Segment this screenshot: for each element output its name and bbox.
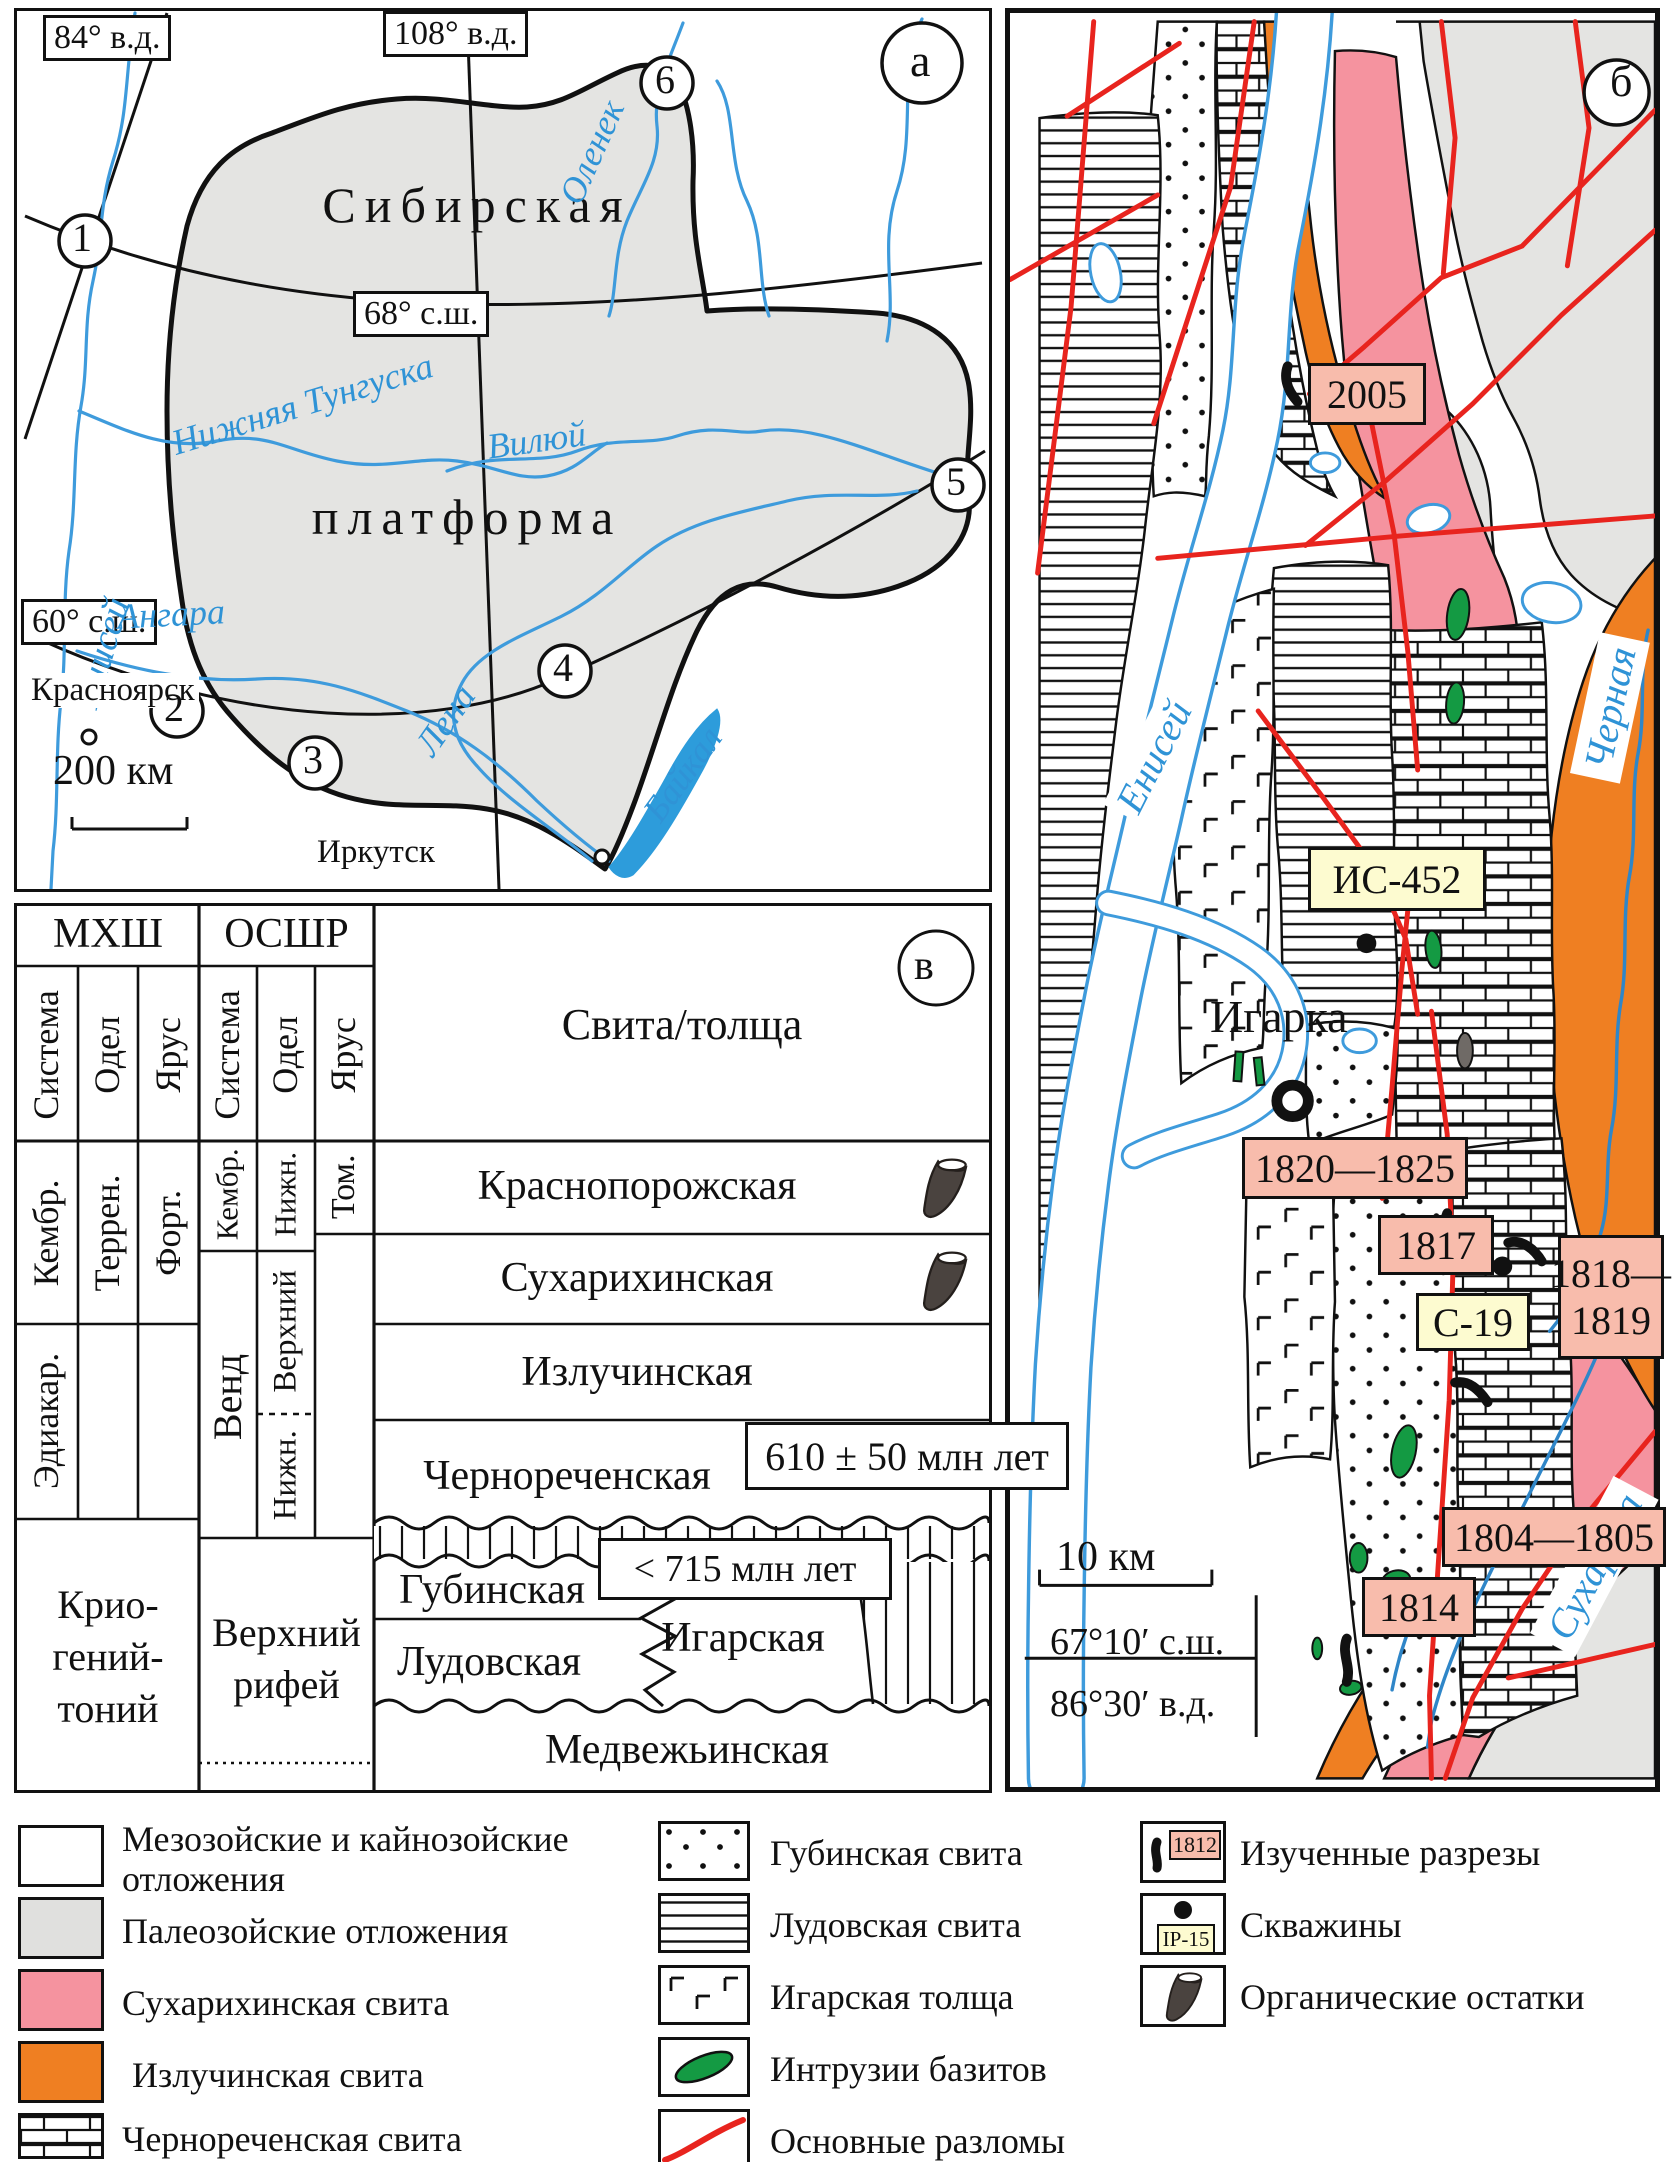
scale-200km-label: 200 км: [53, 749, 173, 793]
legend-swatch-gubinskaya: [658, 1821, 750, 1881]
well-dot-is452: [1357, 933, 1377, 953]
legend-label-sukharikhinskaya: Сухарихинская свита: [122, 1983, 622, 2023]
age-label-715: < 715 млн лет: [598, 1538, 892, 1600]
upper-riphean-line2: рифей: [199, 1664, 374, 1706]
angara-river-label: Ангара: [116, 590, 226, 638]
legend-swatch-faults: [658, 2109, 750, 2162]
upper-riphean-line1: Верхний: [199, 1612, 374, 1654]
legend-label-intrusions: Интрузии базитов: [770, 2049, 1150, 2089]
lon-84-label: 84° в.д.: [43, 15, 171, 61]
cryogenian-line2: гений-: [17, 1636, 199, 1678]
legend-label-izluchinskaya: Излучинская свита: [132, 2055, 632, 2095]
legend: Мезозойские и кайнозойские отложения Пал…: [0, 1793, 1672, 2162]
well-dot-c19: [1493, 1256, 1513, 1276]
unit-medvezhinskaya: Медвежьинская: [497, 1728, 877, 1772]
osshr-lower-vendian-cell: Нижн.: [269, 1395, 304, 1555]
section-label-1818-line2: 1819: [1571, 1297, 1651, 1344]
section-label-1820-1825: 1820—1825: [1242, 1137, 1468, 1199]
mhsh-header: МХШ: [17, 912, 199, 956]
well-label-is452: ИС-452: [1308, 847, 1486, 911]
latitude-label: 67°10′ с.ш.: [1050, 1623, 1224, 1663]
mhsh-otdel-col: Одел: [89, 965, 127, 1145]
marker-3: 3: [303, 739, 323, 781]
osshr-tommotian-cell: Том.: [326, 1102, 362, 1272]
organic-remains-icon: [1143, 1968, 1223, 2024]
well-label-c19: С-19: [1416, 1293, 1530, 1351]
unit-izluchinskaya: Излучинская: [397, 1350, 877, 1394]
unit-gubinskaya: Губинская: [387, 1568, 597, 1612]
panel-a-overview-map: 84° в.д. 108° в.д. 68° с.ш. 60° с.ш. Сиб…: [14, 8, 992, 892]
section-label-1818-1819: 1818— 1819: [1558, 1235, 1664, 1359]
legend-label-igarskaya: Игарская толща: [770, 1977, 1150, 2017]
legend-swatch-mesozoic: [18, 1825, 104, 1887]
lat-68-label: 68° с.ш.: [353, 291, 489, 337]
gray-intrusion-blob: [1457, 1033, 1473, 1068]
legend-label-chernorechenskaya: Чернореченская свита: [122, 2119, 622, 2159]
igarka-town-label: Игарка: [1210, 993, 1348, 1041]
section-label-1814: 1814: [1362, 1577, 1476, 1637]
osshr-vendian-cell: Венд: [207, 1307, 249, 1487]
scale-bar-200km: [72, 817, 187, 829]
legend-section-tag: 1812: [1169, 1830, 1221, 1860]
unit-ludovskaya: Лудовская: [379, 1640, 599, 1684]
legend-label-organic: Органические остатки: [1240, 1977, 1670, 2017]
marker-1: 1: [72, 217, 92, 259]
panel-b-tag: б: [1610, 59, 1632, 105]
marker-6: 6: [655, 59, 675, 101]
marker-4: 4: [553, 647, 573, 689]
unit-krasnoporozhskaya: Краснопорожская: [397, 1164, 877, 1208]
legend-icon-wells: IP-15: [1140, 1893, 1226, 1955]
legend-label-wells: Скважины: [1240, 1905, 1670, 1945]
legend-label-sections: Изученные разрезы: [1240, 1833, 1670, 1873]
panel-v-tag: в: [914, 944, 934, 988]
igarka-town-symbol: [1277, 1085, 1309, 1117]
legend-icon-organic: [1140, 1965, 1226, 2027]
legend-swatch-igarskaya: [658, 1965, 750, 2025]
legend-swatch-ludovskaya: [658, 1893, 750, 1953]
osshr-header: ОСШР: [199, 912, 374, 956]
panel-v-tag-circle: [899, 931, 973, 1005]
mhsh-ediacaran-cell: Эдиакар.: [28, 1331, 66, 1511]
osshr-cambrian-cell: Кембр.: [212, 1114, 245, 1274]
cryogenian-line3: тоний: [17, 1688, 199, 1730]
organic-remains-icon-1: [924, 1160, 966, 1217]
marker-5: 5: [946, 461, 966, 503]
figure-root: 84° в.д. 108° в.д. 68° с.ш. 60° с.ш. Сиб…: [0, 0, 1672, 2162]
panel-v-strat-column: МХШ ОСШР в Свита/толща Система Одел Ярус…: [14, 903, 992, 1793]
organic-remains-icon-2: [924, 1253, 966, 1310]
mhsh-yarus-col: Ярус: [150, 965, 188, 1145]
irkutsk-city-label: Иркутск: [313, 835, 439, 870]
osshr-upper-vendian-cell: Верхний: [269, 1246, 304, 1416]
panel-a-tag: а: [910, 37, 930, 85]
cryogenian-line1: Крио-: [17, 1584, 199, 1626]
legend-icon-sections: 1812: [1140, 1821, 1226, 1883]
marker-2: 2: [164, 687, 184, 729]
legend-label-ludovskaya: Лудовская свита: [770, 1905, 1150, 1945]
mhsh-fortunian-cell: Форт.: [150, 1143, 188, 1323]
legend-label-faults: Основные разломы: [770, 2121, 1150, 2161]
legend-swatch-intrusions: [658, 2037, 750, 2097]
mhsh-system-col: Система: [28, 965, 66, 1145]
section-label-1817: 1817: [1378, 1215, 1494, 1275]
section-label-2005: 2005: [1308, 363, 1426, 425]
longitude-label: 86°30′ в.д.: [1050, 1685, 1215, 1725]
platform-title-line2: платформа: [227, 491, 707, 544]
section-label-1804-1805: 1804—1805: [1442, 1507, 1666, 1567]
unit-sukharikhinskaya: Сухарихинская: [397, 1256, 877, 1300]
unit-igarskaya: Игарская: [653, 1616, 833, 1660]
panel-b-geological-map: б Енисей Черная Сухариха Игарка 2005 ИС-…: [1005, 8, 1660, 1792]
legend-label-gubinskaya: Губинская свита: [770, 1833, 1150, 1873]
legend-well-tag: IP-15: [1157, 1924, 1215, 1954]
irkutsk-city-dot: [595, 850, 609, 864]
mhsh-terreneuvian-cell: Террен.: [89, 1143, 127, 1323]
section-label-1818-line1: 1818—: [1551, 1250, 1671, 1297]
legend-swatch-sukharikhinskaya: [18, 1969, 104, 2031]
legend-swatch-paleozoic: [18, 1897, 104, 1959]
krasnoyarsk-city-dot: [82, 730, 96, 744]
scale-10km-label: 10 км: [1056, 1535, 1155, 1579]
platform-title-line1: Сибирская: [237, 179, 717, 232]
legend-swatch-izluchinskaya: [18, 2041, 104, 2103]
legend-label-mesozoic: Мезозойские и кайнозойские отложения: [122, 1819, 592, 1900]
legend-swatch-chernorechenskaya: [18, 2113, 104, 2159]
lon-108-label: 108° в.д.: [383, 11, 528, 57]
unit-column-header: Свита/толща: [437, 1002, 927, 1048]
legend-label-paleozoic: Палеозойские отложения: [122, 1911, 622, 1951]
age-label-610: 610 ± 50 млн лет: [745, 1422, 1069, 1490]
mhsh-cambrian-cell: Кембр.: [28, 1143, 66, 1323]
unit-chernorechenskaya: Чернореченская: [387, 1454, 747, 1498]
